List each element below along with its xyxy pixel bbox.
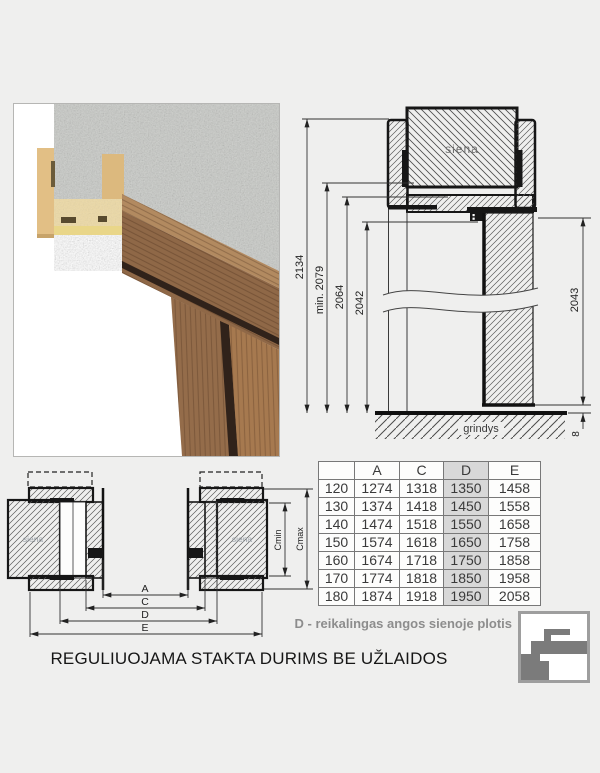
horizontal-section-drawing: siena siena A C D E Cmin bbox=[5, 462, 319, 640]
table-cell: 1950 bbox=[444, 588, 489, 606]
table-cell: 1518 bbox=[400, 516, 444, 534]
table-cell: 150 bbox=[319, 534, 355, 552]
table-cell: 1874 bbox=[355, 588, 400, 606]
dim-frame-inner-height: 2042 bbox=[354, 291, 366, 315]
floor-label: grindys bbox=[463, 423, 499, 435]
jamb-right: siena bbox=[188, 472, 267, 590]
table-cell: 1558 bbox=[489, 498, 541, 516]
table-cell: 1318 bbox=[400, 480, 444, 498]
table-cell: 1550 bbox=[444, 516, 489, 534]
table-cell: 1918 bbox=[400, 588, 444, 606]
floor: grindys bbox=[375, 413, 567, 439]
table-cell: 1374 bbox=[355, 498, 400, 516]
dim-door-height: 2043 bbox=[569, 288, 581, 312]
table-cell: 1658 bbox=[489, 516, 541, 534]
size-table-col-header bbox=[319, 462, 355, 480]
photo-render bbox=[14, 104, 279, 456]
size-table-body: 1201274131813501458130137414181450155814… bbox=[319, 480, 541, 606]
table-cell: 1750 bbox=[444, 552, 489, 570]
size-table-col-header: D bbox=[444, 462, 489, 480]
door-stop-left bbox=[88, 548, 103, 558]
table-cell: 1274 bbox=[355, 480, 400, 498]
wall-label-right: siena bbox=[232, 534, 253, 544]
brand-logo bbox=[518, 611, 590, 683]
door-stop-right bbox=[188, 548, 203, 558]
table-cell: 120 bbox=[319, 480, 355, 498]
page-title: REGULIUOJAMA STAKTA DURIMS BE UŽLAIDOS bbox=[18, 649, 480, 669]
dim-total-height: 2134 bbox=[294, 255, 306, 279]
clamp-jaw-right bbox=[517, 150, 523, 187]
table-cell: 2058 bbox=[489, 588, 541, 606]
frame-seal bbox=[470, 212, 483, 221]
table-cell: 140 bbox=[319, 516, 355, 534]
table-cell: 180 bbox=[319, 588, 355, 606]
table-cell: 1774 bbox=[355, 570, 400, 588]
table-cell: 1818 bbox=[400, 570, 444, 588]
table-cell: 1350 bbox=[444, 480, 489, 498]
wall-thickness-dimensions bbox=[264, 489, 313, 589]
table-row: 1401474151815501658 bbox=[319, 516, 541, 534]
table-cell: 1758 bbox=[489, 534, 541, 552]
dim-a-label: A bbox=[141, 583, 148, 595]
dim-floor-gap: 8 bbox=[571, 431, 582, 437]
clamp-jaw-left bbox=[402, 150, 408, 187]
door-frame-corner-photo bbox=[13, 103, 280, 457]
vertical-section-drawing: siena grindys bbox=[288, 95, 600, 450]
table-cell: 1574 bbox=[355, 534, 400, 552]
dim-e-label: E bbox=[141, 622, 148, 634]
dim-cmax-label: Cmax bbox=[295, 527, 305, 551]
table-cell: 1474 bbox=[355, 516, 400, 534]
dim-cmin-label: Cmin bbox=[273, 529, 283, 550]
table-row: 1201274131813501458 bbox=[319, 480, 541, 498]
table-cell: 1674 bbox=[355, 552, 400, 570]
wall-label: siena bbox=[445, 142, 479, 156]
dimension-lines-right bbox=[535, 218, 591, 429]
wall-label-left: siena bbox=[23, 534, 44, 544]
table-row: 1801874191819502058 bbox=[319, 588, 541, 606]
table-cell: 160 bbox=[319, 552, 355, 570]
table-cell: 1418 bbox=[400, 498, 444, 516]
table-cell: 1858 bbox=[489, 552, 541, 570]
jamb-left: siena bbox=[8, 472, 103, 590]
table-cell: 1450 bbox=[444, 498, 489, 516]
size-table-col-header: A bbox=[355, 462, 400, 480]
dim-min-opening-height: min. 2079 bbox=[314, 266, 326, 314]
table-cell: 1850 bbox=[444, 570, 489, 588]
size-table-col-header: E bbox=[489, 462, 541, 480]
dim-frame-outer-height: 2064 bbox=[334, 285, 346, 309]
size-table-col-header: C bbox=[400, 462, 444, 480]
dimension-note: D - reikalingas angos sienoje plotis bbox=[278, 616, 512, 631]
brand-logo-icon bbox=[521, 614, 587, 680]
dim-c-label: C bbox=[141, 596, 149, 608]
dim-d-label: D bbox=[141, 609, 149, 621]
table-cell: 170 bbox=[319, 570, 355, 588]
table-row: 1501574161816501758 bbox=[319, 534, 541, 552]
table-cell: 1718 bbox=[400, 552, 444, 570]
table-cell: 1458 bbox=[489, 480, 541, 498]
table-cell: 1650 bbox=[444, 534, 489, 552]
page: { "page": { "background": "#efefee", "ti… bbox=[0, 0, 600, 773]
table-row: 1601674171817501858 bbox=[319, 552, 541, 570]
size-table-header: ACDE bbox=[319, 462, 541, 480]
table-cell: 130 bbox=[319, 498, 355, 516]
table-row: 1301374141814501558 bbox=[319, 498, 541, 516]
table-cell: 1618 bbox=[400, 534, 444, 552]
size-table: ACDE 12012741318135014581301374141814501… bbox=[318, 461, 541, 606]
table-cell: 1958 bbox=[489, 570, 541, 588]
table-row: 1701774181818501958 bbox=[319, 570, 541, 588]
